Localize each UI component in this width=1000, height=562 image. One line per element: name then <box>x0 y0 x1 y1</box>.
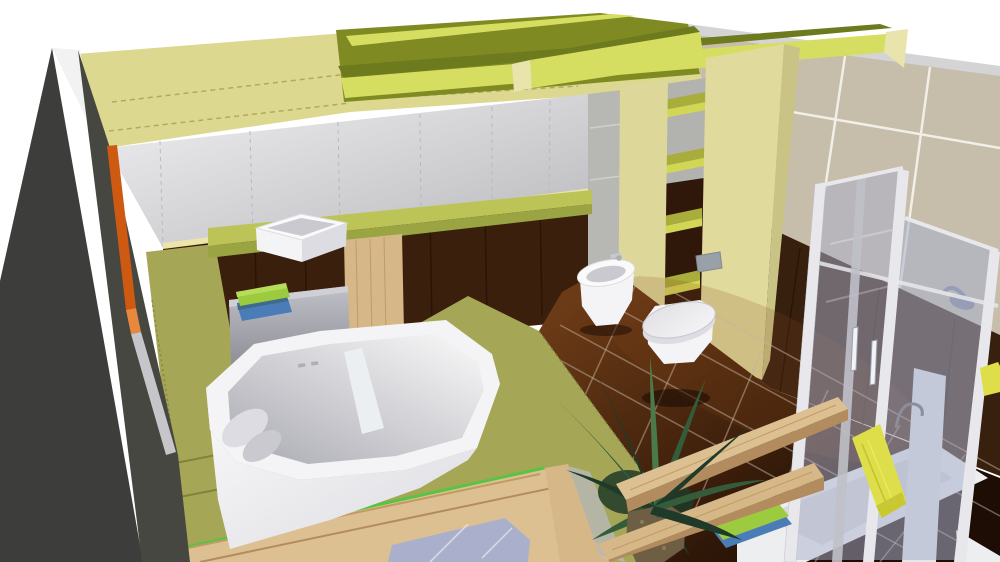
flush-plate[interactable] <box>696 252 722 272</box>
pot-speckle1 <box>640 520 644 524</box>
tub-faucet-hole1 <box>298 363 305 367</box>
corner-gray-column <box>588 90 622 268</box>
tub-faucet-hole2 <box>311 361 318 365</box>
render-viewport <box>0 0 1000 562</box>
wood-cabinet[interactable] <box>344 234 404 340</box>
bidet-mixer-knob <box>616 255 622 261</box>
beam3-end-cap <box>512 60 532 92</box>
bathroom-3d-render <box>0 0 1000 562</box>
pot-speckle5 <box>662 546 666 550</box>
bidet-shadow <box>580 324 632 336</box>
